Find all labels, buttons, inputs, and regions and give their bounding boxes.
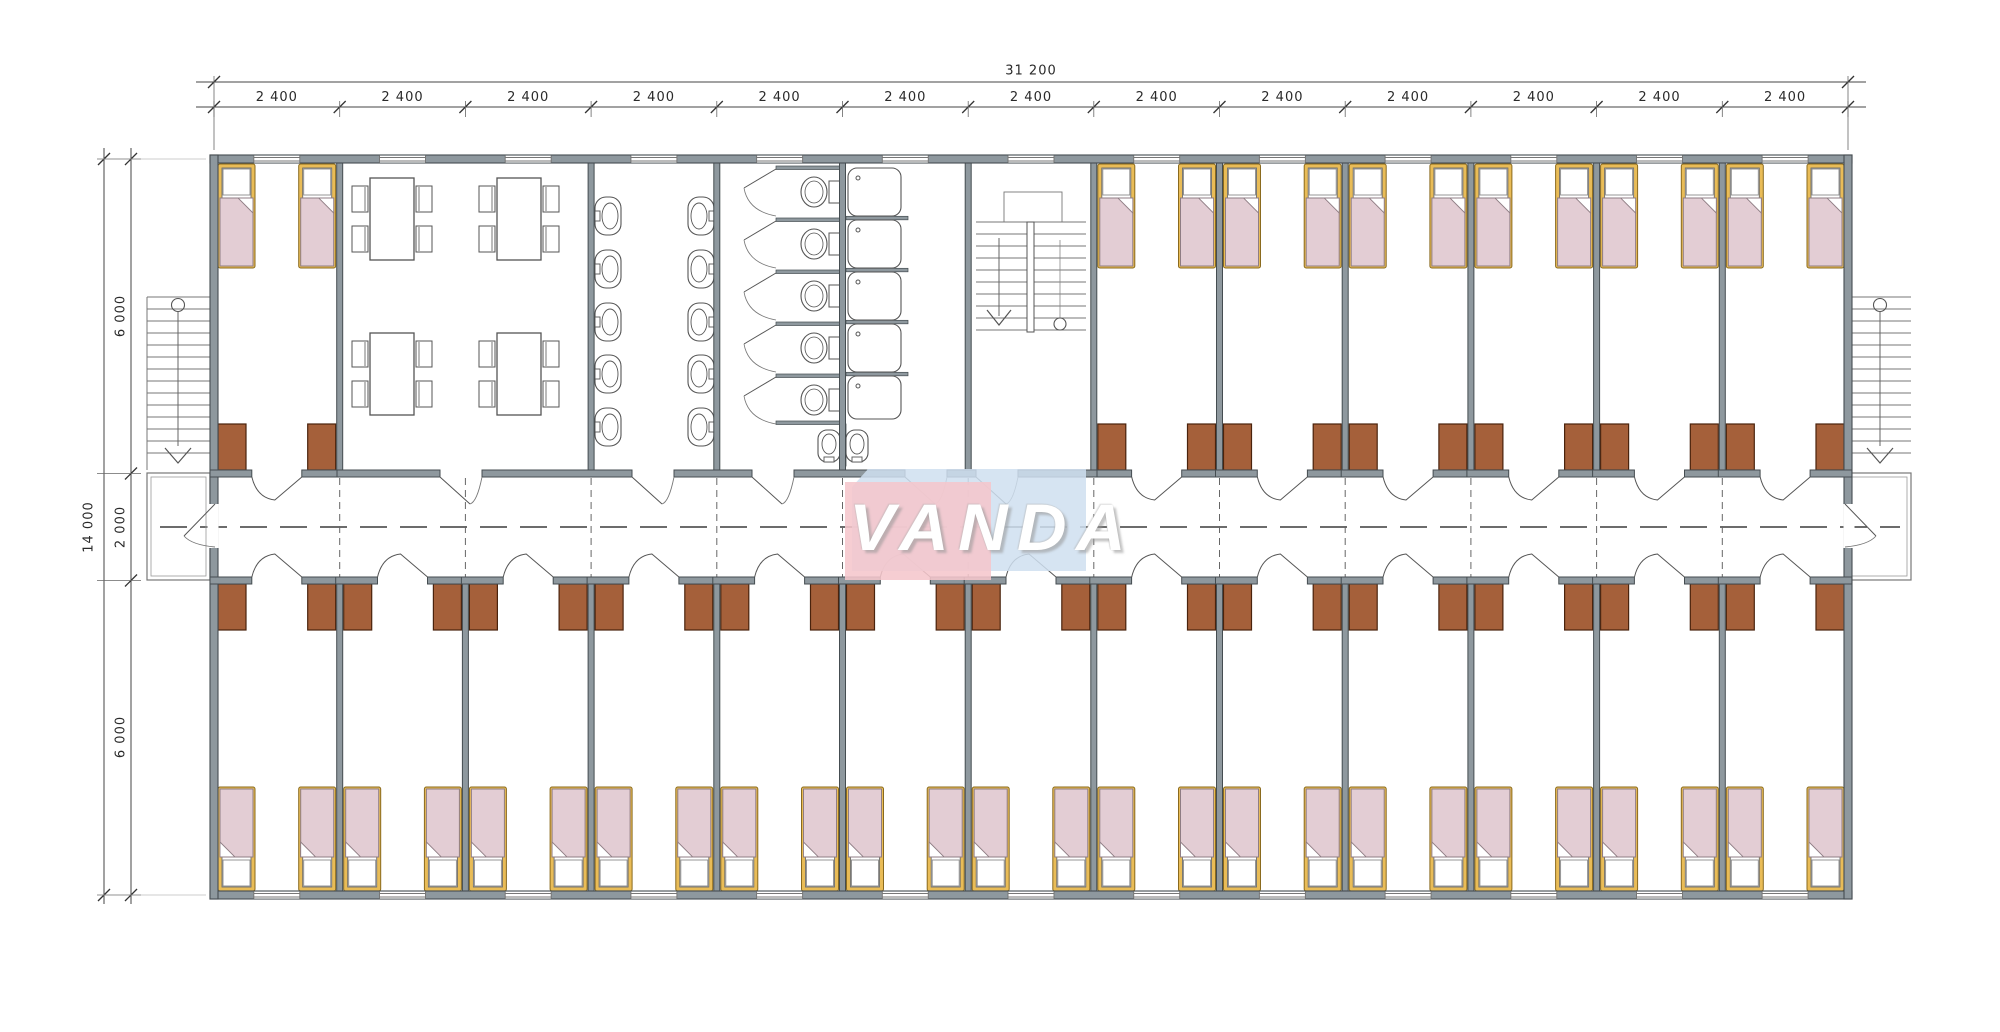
dim-total-height: 14 000	[82, 501, 97, 553]
svg-text:2 400: 2 400	[884, 90, 926, 105]
svg-text:2 400: 2 400	[633, 90, 675, 105]
wash-basins	[595, 197, 714, 446]
watermark-logo-text: VANDA	[849, 489, 1135, 565]
dim-upper-rooms-depth: 6 000	[114, 295, 129, 337]
svg-text:2 400: 2 400	[1261, 90, 1303, 105]
dim-lower-rooms-depth: 6 000	[114, 716, 129, 758]
stairwell	[976, 192, 1086, 332]
svg-text:2 400: 2 400	[1638, 90, 1680, 105]
svg-text:2 400: 2 400	[758, 90, 800, 105]
dim-total-width: 31 200	[1005, 64, 1057, 79]
dining-tables	[352, 178, 559, 415]
floor-plan: 2 4002 4002 4002 4002 4002 4002 4002 400…	[0, 0, 2000, 1032]
svg-text:2 400: 2 400	[1513, 90, 1555, 105]
external-stair-left	[147, 297, 210, 580]
toilet-stalls	[744, 166, 840, 425]
svg-text:2 400: 2 400	[381, 90, 423, 105]
svg-text:2 400: 2 400	[256, 90, 298, 105]
svg-text:2 400: 2 400	[1010, 90, 1052, 105]
external-stair-right	[1848, 297, 1911, 580]
dim-corridor-width: 2 000	[114, 506, 129, 548]
svg-text:2 400: 2 400	[1764, 90, 1806, 105]
svg-text:2 400: 2 400	[1387, 90, 1429, 105]
svg-text:2 400: 2 400	[507, 90, 549, 105]
svg-text:2 400: 2 400	[1136, 90, 1178, 105]
